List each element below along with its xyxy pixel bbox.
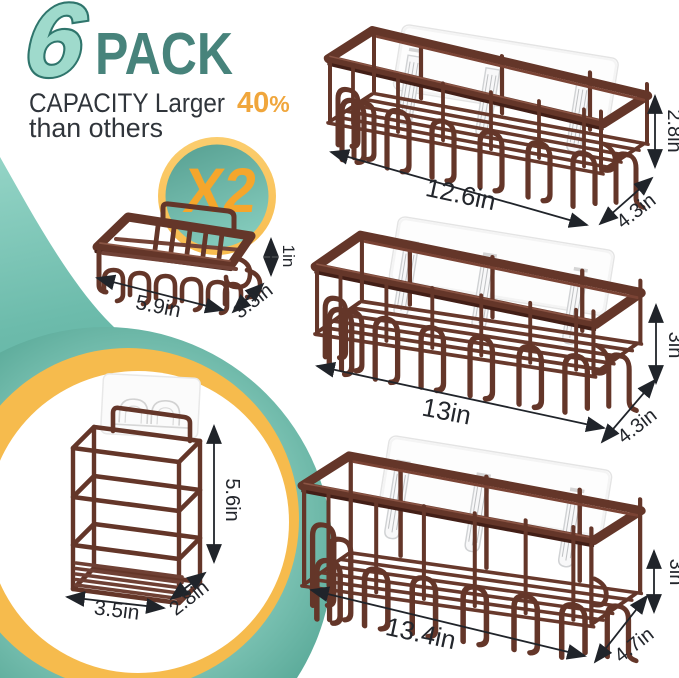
svg-text:3in: 3in: [665, 559, 679, 586]
svg-text:5.6in: 5.6in: [221, 478, 243, 521]
svg-text:2.8in: 2.8in: [663, 109, 679, 152]
svg-text:than others: than others: [29, 113, 163, 143]
svg-text:1in: 1in: [279, 245, 298, 268]
svg-text:PACK: PACK: [95, 21, 233, 87]
svg-text:X2: X2: [180, 156, 261, 226]
svg-text:3in: 3in: [664, 332, 679, 359]
svg-text:40%: 40%: [237, 87, 290, 119]
